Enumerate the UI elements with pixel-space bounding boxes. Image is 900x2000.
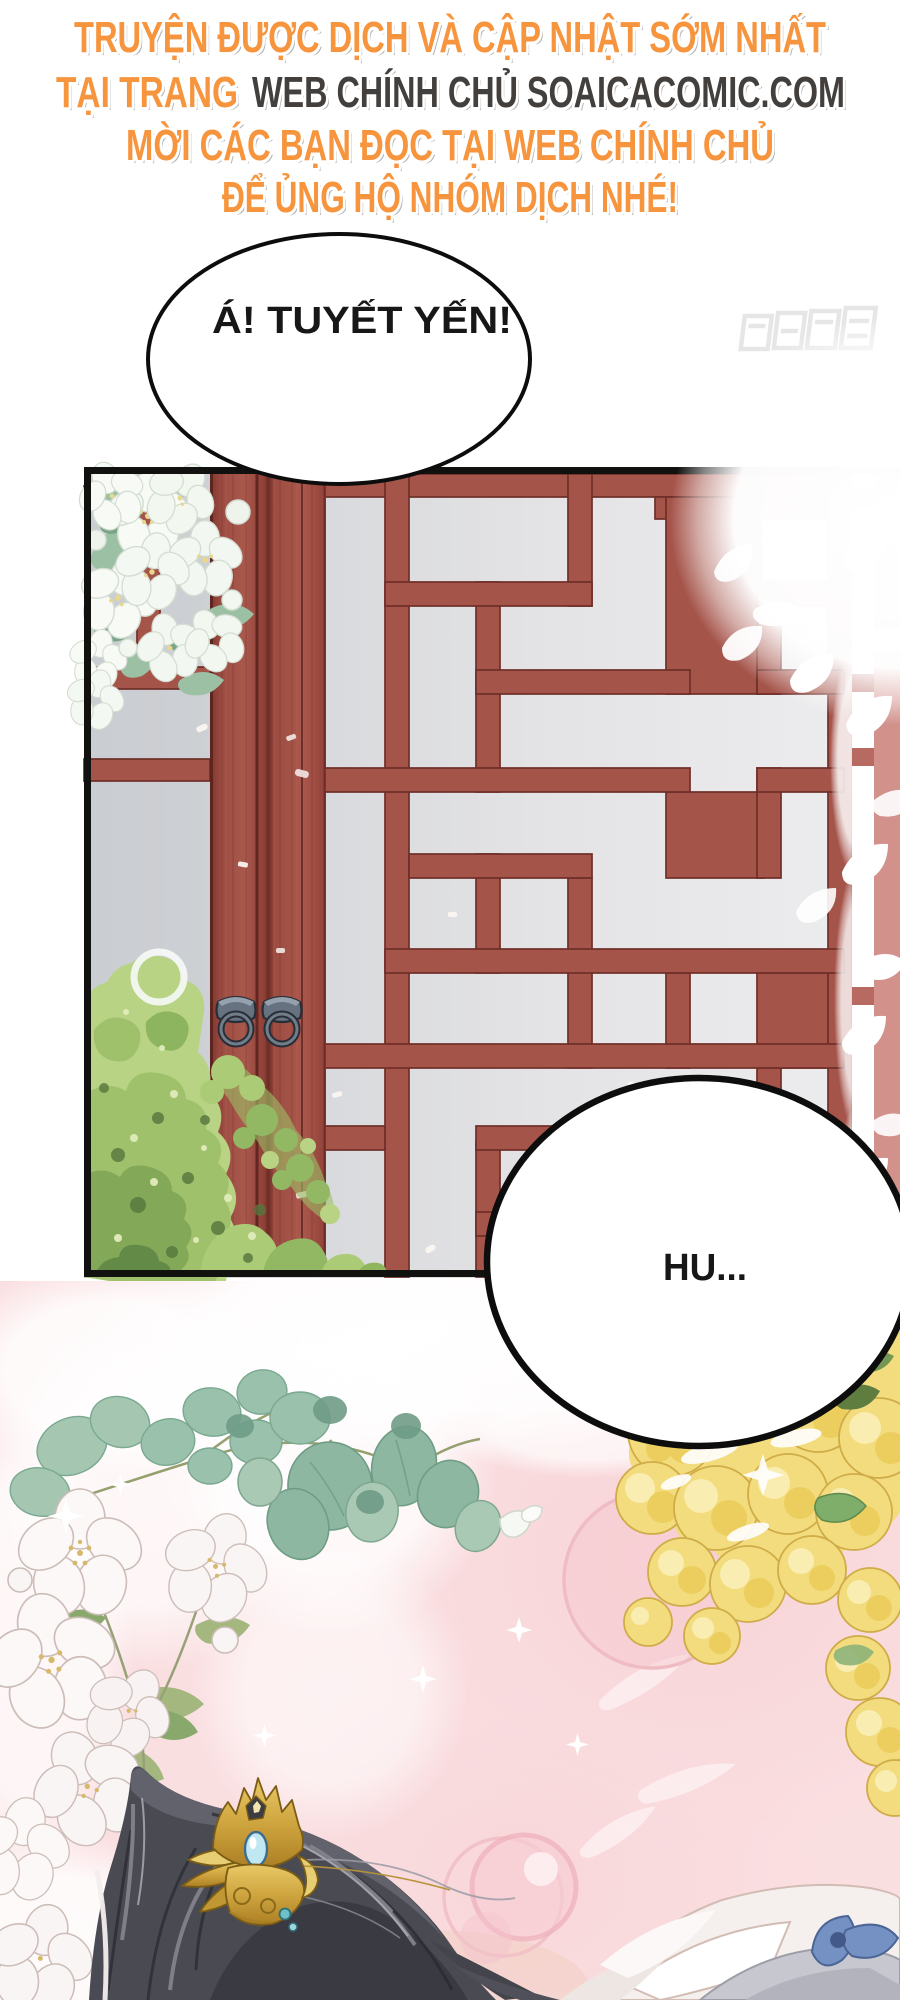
svg-text:TRUYỆN ĐƯỢC DỊCH VÀ CẬP NHẬT S: TRUYỆN ĐƯỢC DỊCH VÀ CẬP NHẬT SỚM NHẤT: [74, 12, 826, 62]
svg-text:MỜI CÁC BẠN ĐỌC TẠI WEB CHÍNH: MỜI CÁC BẠN ĐỌC TẠI WEB CHÍNH CHỦ: [126, 119, 774, 170]
svg-text:WEB CHÍNH CHỦ SOAICACOMIC.COM: WEB CHÍNH CHỦ SOAICACOMIC.COM: [252, 66, 845, 117]
svg-text:TẠI TRANG: TẠI TRANG: [56, 68, 238, 117]
svg-text:ĐỂ ỦNG HỘ NHÓM DỊCH NHÉ!: ĐỂ ỦNG HỘ NHÓM DỊCH NHÉ!: [222, 171, 678, 222]
svg-text:Á! TUYẾT YẾN!: Á! TUYẾT YẾN!: [212, 298, 512, 342]
svg-text:HU...: HU...: [663, 1247, 747, 1289]
